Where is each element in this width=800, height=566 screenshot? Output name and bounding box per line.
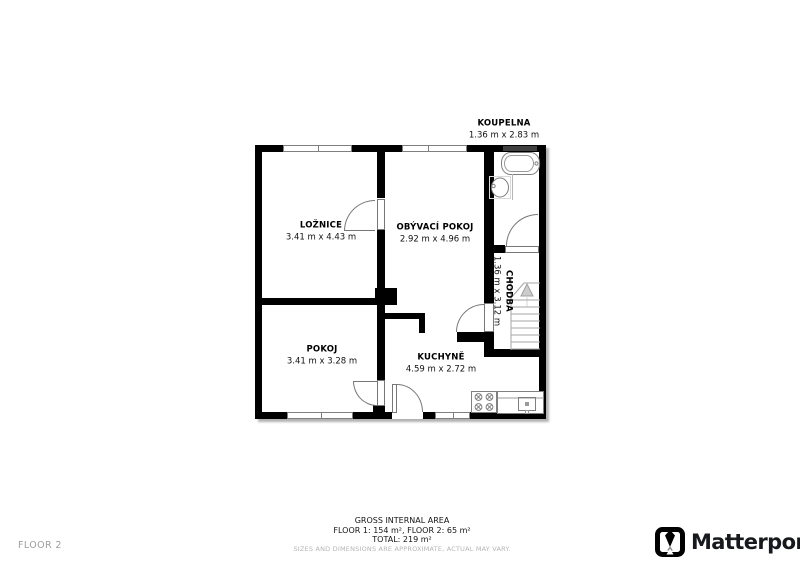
wall-segment	[377, 152, 385, 198]
room-label-loznice: LOŽNICE 3.41 m x 4.43 m	[286, 221, 356, 244]
wall-segment	[353, 412, 392, 419]
room-name: KUCHYNĚ	[406, 353, 476, 364]
bathroom-divider-line	[512, 174, 513, 200]
stove-icon	[471, 391, 497, 413]
wall-segment	[539, 145, 546, 419]
room-dimensions: 1.36 m x 2.83 m	[469, 130, 539, 142]
room-label-chodba: CHODBA 1.36 m x 3.12 m	[491, 256, 514, 326]
floor-label: FLOOR 2	[18, 540, 62, 551]
wall-segment	[373, 405, 385, 412]
room-name: KOUPELNA	[469, 119, 539, 130]
wall-segment	[423, 412, 435, 419]
room-name: LOŽNICE	[286, 221, 356, 232]
room-label-pokoj: POKOJ 3.41 m x 3.28 m	[287, 345, 357, 368]
wall-segment	[457, 332, 484, 342]
wall-segment	[352, 145, 402, 152]
room-dimensions: 4.59 m x 2.72 m	[406, 364, 476, 376]
bathtub-icon	[501, 152, 541, 176]
room-dimensions: 3.41 m x 3.28 m	[287, 356, 357, 368]
matterport-logo: Matterport	[655, 526, 800, 558]
wall-segment	[375, 288, 397, 305]
wall-segment	[255, 145, 262, 419]
door-leaf	[505, 246, 539, 253]
room-name: POKOJ	[287, 345, 357, 356]
gross-internal-area-title: GROSS INTERNAL AREA	[252, 516, 552, 526]
kitchen-counter-sink-icon	[497, 391, 544, 414]
room-name: OBÝVACÍ POKOJ	[397, 223, 474, 234]
bathroom-window	[503, 146, 537, 151]
wall-segment	[377, 228, 385, 288]
room-dimensions: 1.36 m x 3.12 m	[491, 256, 503, 326]
window	[287, 412, 353, 419]
wall-segment	[377, 305, 385, 380]
window-mullion	[318, 146, 319, 151]
door-leaf	[377, 380, 385, 406]
wall-segment	[484, 245, 505, 253]
room-dimensions: 3.41 m x 4.43 m	[286, 232, 356, 244]
wall-segment	[262, 298, 377, 305]
window	[402, 145, 467, 152]
disclaimer: SIZES AND DIMENSIONS ARE APPROXIMATE, AC…	[252, 545, 552, 554]
window-mullion	[453, 413, 454, 418]
window-mullion	[321, 413, 322, 418]
stairs-up-icon	[510, 277, 540, 350]
room-label-koupelna: KOUPELNA 1.36 m x 2.83 m	[469, 119, 539, 142]
wall-segment	[419, 319, 425, 333]
floor-areas: FLOOR 1: 154 m², FLOOR 2: 65 m²	[252, 526, 552, 536]
area-summary: GROSS INTERNAL AREA FLOOR 1: 154 m², FLO…	[252, 516, 552, 554]
window	[283, 145, 352, 152]
sink-icon	[489, 175, 511, 200]
room-dimensions: 2.92 m x 4.96 m	[397, 234, 474, 246]
room-label-obyvaci-pokoj: OBÝVACÍ POKOJ 2.92 m x 4.96 m	[397, 223, 474, 246]
matterport-logo-icon	[655, 527, 685, 557]
window	[435, 412, 470, 419]
floorplan-page: KOUPELNA 1.36 m x 2.83 m LOŽNICE 3.41 m …	[0, 0, 800, 566]
wall-segment	[484, 349, 546, 357]
wall-segment	[255, 412, 287, 419]
door-leaf	[377, 199, 385, 230]
brand-name: Matterport	[691, 530, 800, 554]
room-name: CHODBA	[503, 256, 514, 326]
total-area: TOTAL: 219 m²	[252, 535, 552, 545]
window-mullion	[428, 146, 429, 151]
room-label-kuchyne: KUCHYNĚ 4.59 m x 2.72 m	[406, 353, 476, 376]
